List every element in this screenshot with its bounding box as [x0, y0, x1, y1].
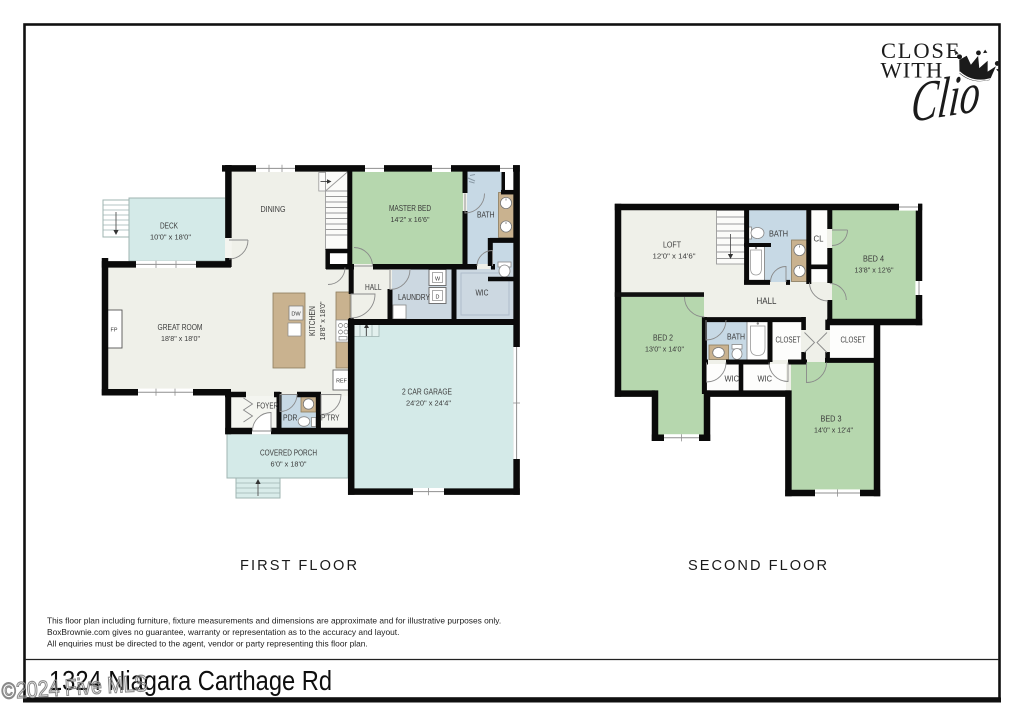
svg-text:BED 2: BED 2: [653, 333, 673, 343]
svg-text:13'0" x 14'0": 13'0" x 14'0": [645, 345, 684, 354]
svg-text:BATH: BATH: [727, 332, 745, 342]
svg-text:KITCHEN: KITCHEN: [307, 306, 317, 336]
svg-text:All enquiries must be directed: All enquiries must be directed to the ag…: [47, 639, 368, 649]
svg-text:Clio: Clio: [909, 60, 983, 134]
svg-text:D: D: [436, 295, 440, 301]
svg-text:14'2" x 16'6": 14'2" x 16'6": [391, 215, 430, 224]
svg-text:FP: FP: [111, 328, 118, 334]
svg-text:P'TRY: P'TRY: [321, 413, 340, 423]
svg-text:CLOSET: CLOSET: [776, 336, 801, 345]
svg-text:DW: DW: [291, 312, 301, 318]
svg-text:2 CAR GARAGE: 2 CAR GARAGE: [402, 387, 452, 397]
svg-text:FIRST FLOOR: FIRST FLOOR: [240, 558, 357, 574]
svg-text:LOFT: LOFT: [663, 240, 681, 250]
svg-text:COVERED PORCH: COVERED PORCH: [260, 448, 317, 458]
svg-text:6'0" x 18'0": 6'0" x 18'0": [271, 460, 307, 469]
svg-text:GREAT ROOM: GREAT ROOM: [158, 322, 203, 332]
svg-text:This floor plan including furn: This floor plan including furniture, fix…: [47, 616, 501, 626]
svg-text:BoxBrownie.com gives no guaran: BoxBrownie.com gives no guarantee, warra…: [47, 627, 399, 637]
svg-text:WIC: WIC: [725, 375, 740, 384]
svg-text:24'20" x 24'4": 24'20" x 24'4": [406, 399, 451, 408]
svg-text:BATH: BATH: [769, 229, 788, 239]
svg-text:18'8" x 18'0": 18'8" x 18'0": [318, 301, 327, 340]
svg-text:MASTER BED: MASTER BED: [389, 203, 431, 213]
svg-text:18'8" x 18'0": 18'8" x 18'0": [161, 334, 200, 343]
svg-text:HALL: HALL: [757, 296, 777, 306]
svg-text:BED 3: BED 3: [821, 414, 842, 424]
svg-text:DECK: DECK: [160, 221, 178, 231]
svg-text:PDR: PDR: [283, 413, 298, 423]
svg-text:SECOND FLOOR: SECOND FLOOR: [688, 558, 827, 574]
svg-text:CLOSET: CLOSET: [841, 336, 866, 345]
svg-text:CL: CL: [814, 235, 825, 244]
svg-text:14'0" x 12'4": 14'0" x 12'4": [814, 426, 853, 435]
svg-text:BATH: BATH: [477, 210, 495, 220]
svg-text:DINING: DINING: [261, 204, 286, 214]
svg-text:WIC: WIC: [476, 288, 489, 298]
svg-text:FOYER: FOYER: [257, 401, 279, 411]
svg-text:12'0" x 14'6": 12'0" x 14'6": [653, 252, 696, 261]
svg-text:WIC: WIC: [758, 375, 773, 384]
svg-text:10'0" x 18'0": 10'0" x 18'0": [150, 233, 191, 242]
svg-text:13'8" x 12'6": 13'8" x 12'6": [855, 266, 894, 275]
svg-text:LAUNDRY: LAUNDRY: [398, 292, 430, 302]
svg-text:REF: REF: [336, 379, 347, 385]
svg-text:BED 4: BED 4: [863, 254, 884, 264]
svg-text:HALL: HALL: [365, 282, 382, 292]
